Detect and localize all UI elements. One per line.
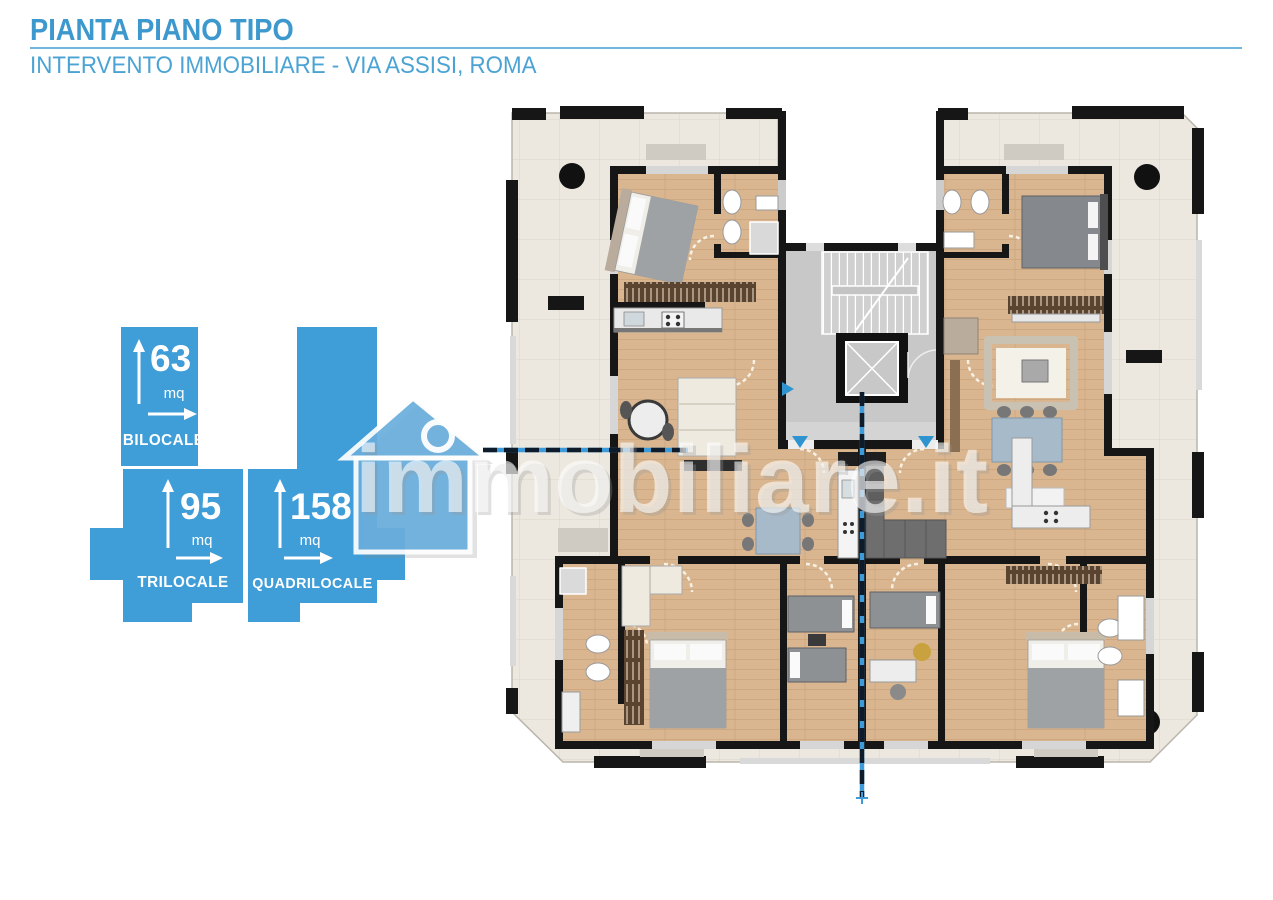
area-unit: mq bbox=[152, 385, 196, 402]
sofa bbox=[988, 340, 1074, 406]
unit-label: TRILOCALE bbox=[126, 574, 240, 592]
area-unit: mq bbox=[180, 532, 224, 549]
wardrobe bbox=[624, 282, 756, 302]
area-value: 158 bbox=[290, 488, 352, 525]
double-bed bbox=[1022, 194, 1108, 270]
area-up-arrow-icon bbox=[272, 478, 288, 550]
area-right-arrow-icon bbox=[176, 551, 224, 565]
page-subtitle: INTERVENTO IMMOBILIARE - VIA ASSISI, ROM… bbox=[30, 52, 536, 80]
area-up-arrow-icon bbox=[131, 338, 147, 406]
unit-shape bbox=[297, 327, 377, 469]
armchair bbox=[944, 318, 978, 354]
single-bed bbox=[788, 596, 854, 632]
area-up-arrow-icon bbox=[160, 478, 176, 550]
page-root: PIANTA PIANO TIPO INTERVENTO IMMOBILIARE… bbox=[0, 0, 1273, 900]
single-bed bbox=[788, 648, 846, 682]
area-value: 95 bbox=[180, 488, 221, 525]
wardrobe bbox=[1008, 296, 1104, 314]
area-unit: mq bbox=[288, 532, 332, 549]
single-bed bbox=[870, 592, 940, 628]
unit-shape bbox=[90, 528, 123, 580]
unit-label: QUADRILOCALE bbox=[251, 575, 374, 592]
area-right-arrow-icon bbox=[284, 551, 334, 565]
area-right-arrow-icon bbox=[148, 407, 198, 421]
sideboard bbox=[1012, 314, 1100, 322]
sofa bbox=[678, 378, 736, 456]
unit-label: BILOCALE bbox=[123, 432, 196, 450]
double-bed bbox=[648, 632, 728, 728]
unit-shape bbox=[248, 603, 300, 622]
page-title: PIANTA PIANO TIPO bbox=[30, 12, 294, 48]
wardrobe bbox=[1006, 566, 1102, 584]
double-bed bbox=[1026, 632, 1106, 728]
shelf bbox=[950, 360, 960, 452]
unit-shape bbox=[377, 528, 405, 580]
stairs-icon bbox=[822, 252, 928, 334]
unit-shape bbox=[123, 603, 192, 622]
kitchen-counter bbox=[614, 308, 722, 332]
floor-plan bbox=[470, 100, 1210, 810]
area-value: 63 bbox=[150, 340, 191, 377]
wardrobe bbox=[624, 630, 644, 725]
tv-unit bbox=[684, 460, 742, 471]
title-underline bbox=[30, 47, 1242, 49]
nightstand bbox=[808, 634, 826, 646]
